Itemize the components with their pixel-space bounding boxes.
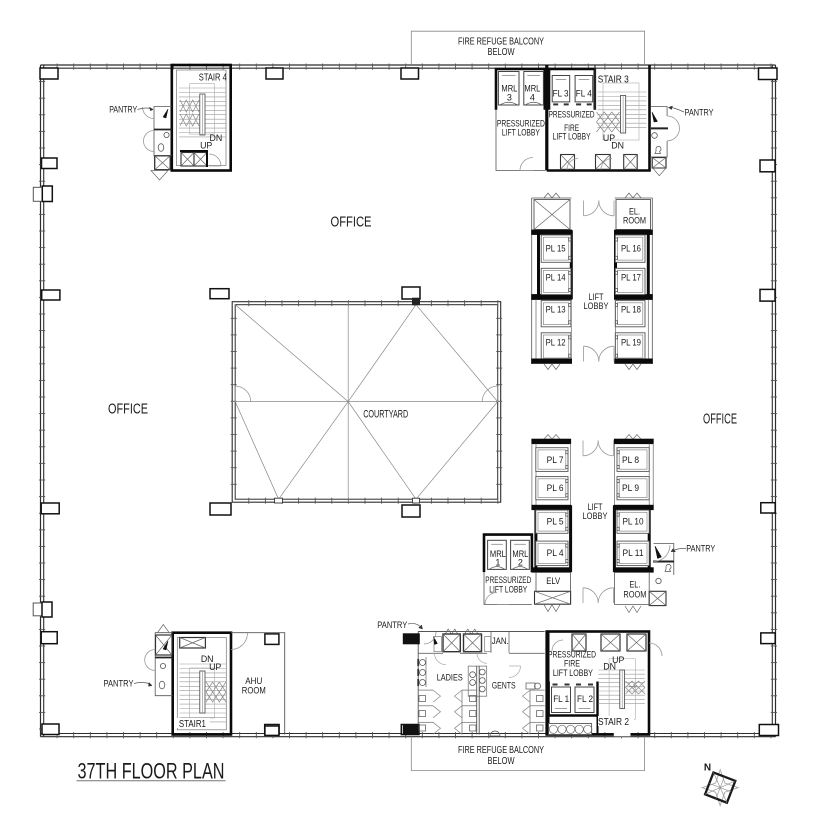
- svg-text:PL 18: PL 18: [621, 304, 641, 315]
- svg-text:OFFICE: OFFICE: [703, 411, 737, 428]
- svg-text:ROOM: ROOM: [242, 685, 266, 696]
- svg-text:FIRE REFUGE BALCONY: FIRE REFUGE BALCONY: [458, 36, 544, 47]
- svg-text:PL 9: PL 9: [622, 482, 639, 493]
- svg-text:2: 2: [518, 557, 523, 567]
- svg-text:LIFT LOBBY: LIFT LOBBY: [553, 668, 593, 678]
- svg-text:PL 12: PL 12: [546, 337, 566, 348]
- svg-text:PL 11: PL 11: [623, 547, 644, 558]
- svg-text:ROOM: ROOM: [623, 215, 646, 226]
- svg-text:PL 15: PL 15: [546, 243, 566, 254]
- svg-text:PANTRY: PANTRY: [377, 620, 408, 631]
- svg-text:PL 14: PL 14: [546, 271, 566, 282]
- svg-text:OFFICE: OFFICE: [108, 401, 148, 418]
- svg-text:DN: DN: [611, 141, 624, 151]
- svg-text:FL 1: FL 1: [553, 694, 569, 704]
- svg-text:BELOW: BELOW: [488, 756, 516, 767]
- svg-text:FIRE REFUGE BALCONY: FIRE REFUGE BALCONY: [458, 745, 544, 756]
- svg-text:UP: UP: [209, 662, 221, 672]
- svg-text:3: 3: [507, 92, 512, 102]
- svg-text:LOBBY: LOBBY: [584, 301, 609, 312]
- svg-text:STAIR 4: STAIR 4: [199, 73, 227, 84]
- svg-text:PL 19: PL 19: [621, 337, 641, 348]
- svg-text:PL 10: PL 10: [623, 515, 644, 526]
- svg-text:LIFT LOBBY: LIFT LOBBY: [553, 132, 591, 142]
- svg-text:PANTRY: PANTRY: [109, 104, 137, 115]
- svg-text:BELOW: BELOW: [488, 47, 516, 58]
- svg-text:4: 4: [530, 92, 535, 102]
- svg-text:OFFICE: OFFICE: [331, 213, 372, 230]
- svg-text:PANTRY: PANTRY: [685, 107, 714, 118]
- svg-text:GENTS: GENTS: [492, 681, 516, 692]
- svg-text:PL 16: PL 16: [621, 243, 641, 254]
- svg-text:PL 7: PL 7: [547, 454, 564, 465]
- svg-text:PANTRY: PANTRY: [104, 678, 135, 689]
- svg-text:JAN.: JAN.: [492, 636, 509, 646]
- svg-text:1: 1: [495, 557, 500, 567]
- svg-text:STAIR 2: STAIR 2: [598, 717, 629, 728]
- svg-text:FL 3: FL 3: [553, 89, 569, 99]
- svg-text:PL 13: PL 13: [546, 304, 566, 315]
- svg-text:LADIES: LADIES: [437, 672, 463, 683]
- svg-text:PRESSURIZED: PRESSURIZED: [549, 109, 595, 119]
- svg-text:STAIR 3: STAIR 3: [598, 75, 629, 86]
- svg-text:LOBBY: LOBBY: [583, 511, 608, 522]
- svg-text:PL 17: PL 17: [621, 271, 641, 282]
- svg-text:STAIR1: STAIR1: [179, 719, 206, 730]
- svg-text:PANTRY: PANTRY: [686, 544, 715, 555]
- svg-text:N: N: [704, 763, 711, 774]
- svg-text:ELV: ELV: [546, 575, 561, 586]
- svg-text:PL 8: PL 8: [622, 454, 639, 465]
- svg-text:PL 5: PL 5: [547, 515, 564, 526]
- svg-text:ROOM: ROOM: [623, 588, 646, 599]
- svg-text:COURTYARD: COURTYARD: [363, 409, 408, 421]
- svg-text:37TH FLOOR PLAN: 37TH FLOOR PLAN: [78, 759, 225, 784]
- svg-text:FL 4: FL 4: [576, 89, 592, 99]
- svg-text:LIFT LOBBY: LIFT LOBBY: [502, 128, 540, 138]
- svg-text:DN: DN: [603, 661, 616, 671]
- svg-text:PL 6: PL 6: [547, 482, 564, 493]
- svg-text:UP: UP: [200, 141, 212, 151]
- svg-text:FL 2: FL 2: [577, 694, 593, 704]
- svg-text:PL 4: PL 4: [547, 547, 564, 558]
